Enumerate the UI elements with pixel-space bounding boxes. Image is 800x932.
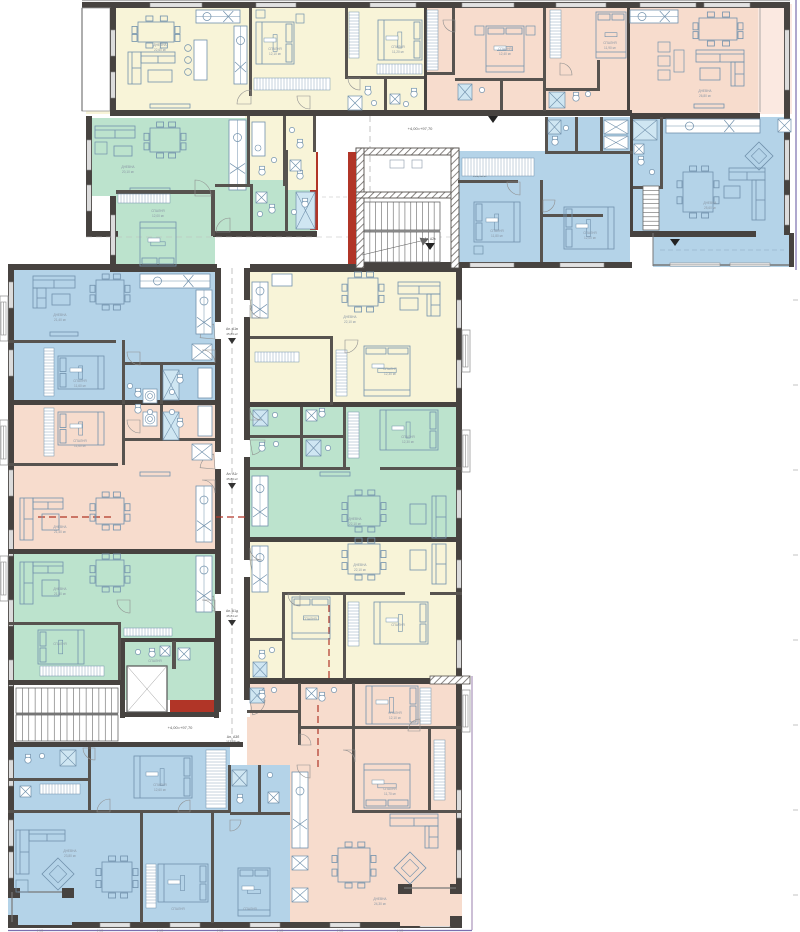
svg-text:14,25: 14,25 xyxy=(277,929,284,932)
svg-text:СПАЛНЯ: СПАЛНЯ xyxy=(388,711,402,715)
svg-text:СПАЛНЯ: СПАЛНЯ xyxy=(268,47,282,51)
svg-text:45,84 м²: 45,84 м² xyxy=(226,477,237,481)
svg-text:ДНЕВНА: ДНЕВНА xyxy=(348,517,362,521)
svg-text:СПАЛНЯ: СПАЛНЯ xyxy=(73,439,87,443)
svg-text:Ап. А1д: Ап. А1д xyxy=(226,609,238,613)
svg-text:22,60 м²: 22,60 м² xyxy=(154,48,166,52)
svg-text:21,40 м²: 21,40 м² xyxy=(54,592,66,596)
svg-text:11,20 м²: 11,20 м² xyxy=(392,50,404,54)
svg-text:20,10 м²: 20,10 м² xyxy=(122,170,134,174)
svg-text:ДНЕВНА: ДНЕВНА xyxy=(353,563,367,567)
svg-text:ДНЕВНА: ДНЕВНА xyxy=(698,89,712,93)
svg-text:ДНЕВНА: ДНЕВНА xyxy=(121,165,135,169)
svg-text:СПАЛНЯ: СПАЛНЯ xyxy=(498,47,512,51)
svg-text:21,40 м²: 21,40 м² xyxy=(54,530,66,534)
svg-text:21,40 м²: 21,40 м² xyxy=(54,318,66,322)
svg-text:14,25: 14,25 xyxy=(157,929,164,932)
svg-text:22,10 м²: 22,10 м² xyxy=(349,522,361,526)
svg-text:45,84 м²: 45,84 м² xyxy=(226,332,237,336)
svg-text:24,30 м²: 24,30 м² xyxy=(374,902,386,906)
svg-text:СПАЛНЯ: СПАЛНЯ xyxy=(603,41,617,45)
svg-text:СПАЛНЯ: СПАЛНЯ xyxy=(383,787,397,791)
svg-text:Ап. А2в: Ап. А2в xyxy=(424,237,436,241)
svg-text:ДНЕВНА: ДНЕВНА xyxy=(373,897,387,901)
svg-text:ДНЕВНА: ДНЕВНА xyxy=(53,587,67,591)
svg-text:СПАЛНЯ: СПАЛНЯ xyxy=(391,623,405,627)
svg-text:СПАЛНЯ: СПАЛНЯ xyxy=(53,642,67,646)
svg-text:11,90 м²: 11,90 м² xyxy=(604,46,616,50)
svg-text:Ап. А1г: Ап. А1г xyxy=(226,472,238,476)
svg-text:14,25: 14,25 xyxy=(337,929,344,932)
svg-text:11,60 м²: 11,60 м² xyxy=(74,384,86,388)
svg-text:ДНЕВНА: ДНЕВНА xyxy=(53,313,67,317)
svg-text:12,40 м²: 12,40 м² xyxy=(499,52,511,56)
svg-text:СПАЛНЯ: СПАЛНЯ xyxy=(171,907,185,911)
svg-text:СПАЛНЯ: СПАЛНЯ xyxy=(391,45,405,49)
svg-text:12,10 м²: 12,10 м² xyxy=(269,52,281,56)
svg-text:14,25: 14,25 xyxy=(97,929,104,932)
svg-text:14,25: 14,25 xyxy=(37,929,44,932)
svg-text:12,30 м²: 12,30 м² xyxy=(402,440,414,444)
svg-text:СПАЛНЯ: СПАЛНЯ xyxy=(153,783,167,787)
svg-text:14,25: 14,25 xyxy=(217,929,224,932)
svg-text:Ап. А3б: Ап. А3б xyxy=(227,735,239,739)
svg-text:+4,00=+97,70: +4,00=+97,70 xyxy=(408,126,434,131)
svg-text:23,80 м²: 23,80 м² xyxy=(64,854,76,858)
svg-text:СПАЛНЯ: СПАЛНЯ xyxy=(583,231,597,235)
svg-text:14,25: 14,25 xyxy=(397,929,404,932)
svg-text:22,10 м²: 22,10 м² xyxy=(344,320,356,324)
svg-text:12,30 м²: 12,30 м² xyxy=(384,372,396,376)
svg-text:26,80 м²: 26,80 м² xyxy=(699,94,711,98)
svg-text:11,80 м²: 11,80 м² xyxy=(491,234,503,238)
svg-text:СПАЛНЯ: СПАЛНЯ xyxy=(73,379,87,383)
svg-text:12,00 м²: 12,00 м² xyxy=(584,236,596,240)
svg-text:ДНЕВНА: ДНЕВНА xyxy=(53,525,67,529)
svg-text:12,00 м²: 12,00 м² xyxy=(152,214,164,218)
svg-text:Ап. А1в: Ап. А1в xyxy=(226,327,238,331)
svg-text:11,60 м²: 11,60 м² xyxy=(74,444,86,448)
svg-text:СПАЛНЯ: СПАЛНЯ xyxy=(243,907,257,911)
svg-text:ДНЕВНА: ДНЕВНА xyxy=(343,315,357,319)
svg-text:ДНЕВНА: ДНЕВНА xyxy=(703,201,717,205)
svg-text:25,60 м²: 25,60 м² xyxy=(704,206,716,210)
svg-text:45,84 м²: 45,84 м² xyxy=(226,614,237,618)
svg-text:ДНЕВНА: ДНЕВНА xyxy=(63,849,77,853)
svg-text:СПАЛНЯ: СПАЛНЯ xyxy=(303,617,317,621)
svg-text:12,60 м²: 12,60 м² xyxy=(154,788,166,792)
svg-text:СПАЛНЯ: СПАЛНЯ xyxy=(490,229,504,233)
svg-text:СПАЛНЯ: СПАЛНЯ xyxy=(151,209,165,213)
svg-text:+4,00=+97,70: +4,00=+97,70 xyxy=(168,725,194,730)
svg-text:СПАЛНЯ: СПАЛНЯ xyxy=(383,367,397,371)
svg-text:ДНЕВНА: ДНЕВНА xyxy=(153,43,167,47)
svg-text:СПАЛНЯ: СПАЛНЯ xyxy=(401,435,415,439)
svg-text:22,10 м²: 22,10 м² xyxy=(354,568,366,572)
svg-text:11,70 м²: 11,70 м² xyxy=(384,792,396,796)
svg-text:12,10 м²: 12,10 м² xyxy=(389,716,401,720)
svg-text:СПАЛНЯ: СПАЛНЯ xyxy=(148,659,162,663)
